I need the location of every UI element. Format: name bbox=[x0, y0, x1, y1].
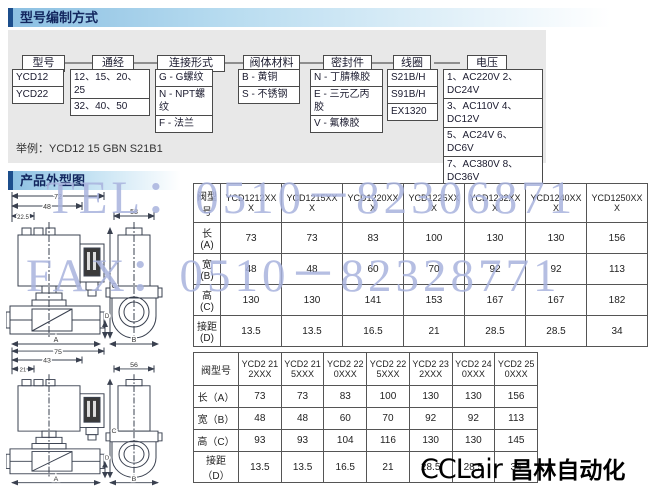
table-corner-header: 阀型号 bbox=[194, 353, 239, 386]
flow-options-coil: S21B/HS91B/HEX1320 bbox=[387, 70, 438, 121]
table-cell: 130 bbox=[526, 223, 587, 254]
table-cell: 104 bbox=[324, 430, 367, 452]
dim-label: 43 bbox=[43, 358, 51, 365]
table-cell: 60 bbox=[324, 408, 367, 430]
table-row: 高（C）9393104116130130145 bbox=[194, 430, 538, 452]
row-label: 高（C） bbox=[194, 430, 239, 452]
dim-label: 48 bbox=[43, 204, 51, 211]
table-cell: 130 bbox=[409, 386, 452, 408]
table-cell: 93 bbox=[281, 430, 324, 452]
dim-label: 58 bbox=[130, 209, 138, 216]
table-cell: 21 bbox=[404, 316, 465, 347]
flow-options-connection: G - G螺纹N - NPT螺纹F - 法兰 bbox=[155, 70, 213, 133]
dim-label: A bbox=[54, 337, 59, 344]
table-cell: 93 bbox=[239, 430, 282, 452]
flow-options-seal: N - 丁腈橡胶E - 三元乙丙胶V - 氟橡胶 bbox=[310, 70, 383, 133]
row-label: 宽(B) bbox=[194, 254, 221, 285]
table-cell: 48 bbox=[282, 254, 343, 285]
table-cell: 92 bbox=[465, 254, 526, 285]
table-cell: 92 bbox=[409, 408, 452, 430]
table-cell: 28.5 bbox=[526, 316, 587, 347]
option-cell: 1、AC220V 2、DC24V bbox=[443, 69, 543, 99]
option-cell: 32、40、50 bbox=[70, 98, 150, 116]
table-cell: 13.5 bbox=[239, 452, 282, 483]
table-cell: 73 bbox=[239, 386, 282, 408]
table-cell: 156 bbox=[587, 223, 648, 254]
table-cell: 73 bbox=[281, 386, 324, 408]
column-header: YCD2 240XXX bbox=[452, 353, 495, 386]
dim-label: C bbox=[111, 428, 116, 435]
dim-label: 72 bbox=[54, 194, 62, 201]
table-cell: 130 bbox=[465, 223, 526, 254]
table-cell: 113 bbox=[495, 408, 538, 430]
page-root: { "header1": { "title": "型号编制方式" }, "hea… bbox=[0, 0, 650, 491]
row-label: 高(C) bbox=[194, 285, 221, 316]
table-cell: 130 bbox=[452, 430, 495, 452]
table-cell: 28.5 bbox=[465, 316, 526, 347]
table-cell: 83 bbox=[324, 386, 367, 408]
option-cell: N - 丁腈橡胶 bbox=[310, 69, 383, 87]
row-label: 长（A） bbox=[194, 386, 239, 408]
row-label: 宽（B） bbox=[194, 408, 239, 430]
column-header: YCD2 250XXX bbox=[495, 353, 538, 386]
table-cell: 70 bbox=[367, 408, 410, 430]
dim-label: A bbox=[54, 476, 59, 483]
table-cell: 130 bbox=[282, 285, 343, 316]
table-cell: 130 bbox=[221, 285, 282, 316]
table-row: 长（A）737383100130130156 bbox=[194, 386, 538, 408]
option-cell: N - NPT螺纹 bbox=[155, 86, 213, 116]
row-label: 接距(D) bbox=[194, 316, 221, 347]
brand-logo-text: CCLair bbox=[420, 454, 502, 485]
table-cell: 60 bbox=[343, 254, 404, 285]
table-row: 宽(B)484860709292113 bbox=[194, 254, 648, 285]
table-cell: 145 bbox=[495, 430, 538, 452]
dim-label: D bbox=[105, 456, 109, 462]
model-coding-panel: 型号 通经 连接形式 阀体材料 密封件 线圈 电压 YCD12YCD22 12、… bbox=[8, 30, 546, 163]
option-cell: 12、15、20、25 bbox=[70, 69, 150, 99]
table-cell: 130 bbox=[409, 430, 452, 452]
option-cell: G - G螺纹 bbox=[155, 69, 213, 87]
option-cell: 7、AC380V 8、DC36V bbox=[443, 156, 543, 186]
table-cell: 167 bbox=[526, 285, 587, 316]
table-cell: 13.5 bbox=[221, 316, 282, 347]
option-cell: V - 氟橡胶 bbox=[310, 115, 383, 133]
table-cell: 48 bbox=[281, 408, 324, 430]
table-cell: 34 bbox=[587, 316, 648, 347]
spec-table-ycd12: 阀型号YCD1212XXXYCD1215XXXYCD1220XXXYCD1225… bbox=[193, 183, 648, 347]
table-row: 高(C)130130141153167167182 bbox=[194, 285, 648, 316]
option-cell: YCD12 bbox=[12, 69, 64, 87]
dim-label: 21 bbox=[20, 368, 27, 374]
table-row: 长(A)737383100130130156 bbox=[194, 223, 648, 254]
footer-brand-line: CCLair 昌林自动化 bbox=[420, 451, 625, 485]
option-cell: E - 三元乙丙胶 bbox=[310, 86, 383, 116]
table-row: 宽（B）484860709292113 bbox=[194, 408, 538, 430]
spec-table: 阀型号YCD1212XXXYCD1215XXXYCD1220XXXYCD1225… bbox=[193, 183, 648, 347]
row-label: 长(A) bbox=[194, 223, 221, 254]
option-cell: 5、AC24V 6、DC6V bbox=[443, 127, 543, 157]
option-cell: 3、AC110V 4、DC12V bbox=[443, 98, 543, 128]
option-cell: YCD22 bbox=[12, 86, 64, 104]
flow-options-diameter: 12、15、20、2532、40、50 bbox=[70, 70, 150, 116]
column-header: YCD2 225XXX bbox=[367, 353, 410, 386]
column-header: YCD1215XXX bbox=[282, 184, 343, 223]
section-title-product-outline: 产品外型图 bbox=[8, 171, 190, 190]
valve-drawing-ycd12: 72 48 22.5 58 C D A B bbox=[6, 188, 191, 350]
option-cell: S21B/H bbox=[387, 69, 438, 87]
table-cell: 141 bbox=[343, 285, 404, 316]
option-cell: F - 法兰 bbox=[155, 115, 213, 133]
table-cell: 92 bbox=[526, 254, 587, 285]
column-header: YCD1240XXX bbox=[526, 184, 587, 223]
column-header: YCD1232XXX bbox=[465, 184, 526, 223]
column-header: YCD2 212XXX bbox=[239, 353, 282, 386]
flow-options-body-material: B - 黄铜S - 不锈钢 bbox=[238, 70, 300, 104]
column-header: YCD1250XXX bbox=[587, 184, 648, 223]
company-name: 昌林自动化 bbox=[510, 457, 625, 483]
table-cell: 73 bbox=[221, 223, 282, 254]
table-cell: 13.5 bbox=[282, 316, 343, 347]
table-corner-header: 阀型号 bbox=[194, 184, 221, 223]
dim-label: 56 bbox=[130, 362, 138, 369]
table-cell: 13.5 bbox=[281, 452, 324, 483]
table-cell: 100 bbox=[367, 386, 410, 408]
table-cell: 167 bbox=[465, 285, 526, 316]
table-cell: 153 bbox=[404, 285, 465, 316]
column-header: YCD2 220XXX bbox=[324, 353, 367, 386]
table-cell: 16.5 bbox=[343, 316, 404, 347]
section-title-model-coding: 型号编制方式 bbox=[8, 8, 642, 27]
valve-drawing-ycd2: 75 43 21 56 C D A B bbox=[6, 344, 191, 488]
flow-options-model: YCD12YCD22 bbox=[12, 70, 64, 104]
option-cell: S91B/H bbox=[387, 86, 438, 104]
table-cell: 73 bbox=[282, 223, 343, 254]
column-header: YCD1225XXX bbox=[404, 184, 465, 223]
table-cell: 113 bbox=[587, 254, 648, 285]
table-cell: 48 bbox=[221, 254, 282, 285]
option-cell: B - 黄铜 bbox=[238, 69, 300, 87]
table-row: 接距(D)13.513.516.52128.528.534 bbox=[194, 316, 648, 347]
column-header: YCD1220XXX bbox=[343, 184, 404, 223]
table-cell: 21 bbox=[367, 452, 410, 483]
table-cell: 70 bbox=[404, 254, 465, 285]
table-cell: 48 bbox=[239, 408, 282, 430]
table-cell: 156 bbox=[495, 386, 538, 408]
column-header: YCD2 232XXX bbox=[409, 353, 452, 386]
option-cell: S - 不锈钢 bbox=[238, 86, 300, 104]
dim-label: D bbox=[105, 314, 110, 320]
table-cell: 182 bbox=[587, 285, 648, 316]
dim-label: B bbox=[132, 337, 137, 344]
table-cell: 100 bbox=[404, 223, 465, 254]
dim-label: B bbox=[132, 476, 137, 483]
dim-label: 75 bbox=[54, 349, 62, 356]
example-text: 举例：YCD12 15 GBN S21B1 bbox=[16, 140, 163, 156]
table-cell: 92 bbox=[452, 408, 495, 430]
dim-label: 22.5 bbox=[17, 215, 29, 221]
column-header: YCD2 215XXX bbox=[281, 353, 324, 386]
table-cell: 116 bbox=[367, 430, 410, 452]
row-label: 接距（D） bbox=[194, 452, 239, 483]
table-cell: 16.5 bbox=[324, 452, 367, 483]
dim-label: C bbox=[111, 283, 116, 290]
column-header: YCD1212XXX bbox=[221, 184, 282, 223]
table-cell: 130 bbox=[452, 386, 495, 408]
table-cell: 83 bbox=[343, 223, 404, 254]
option-cell: EX1320 bbox=[387, 103, 438, 121]
